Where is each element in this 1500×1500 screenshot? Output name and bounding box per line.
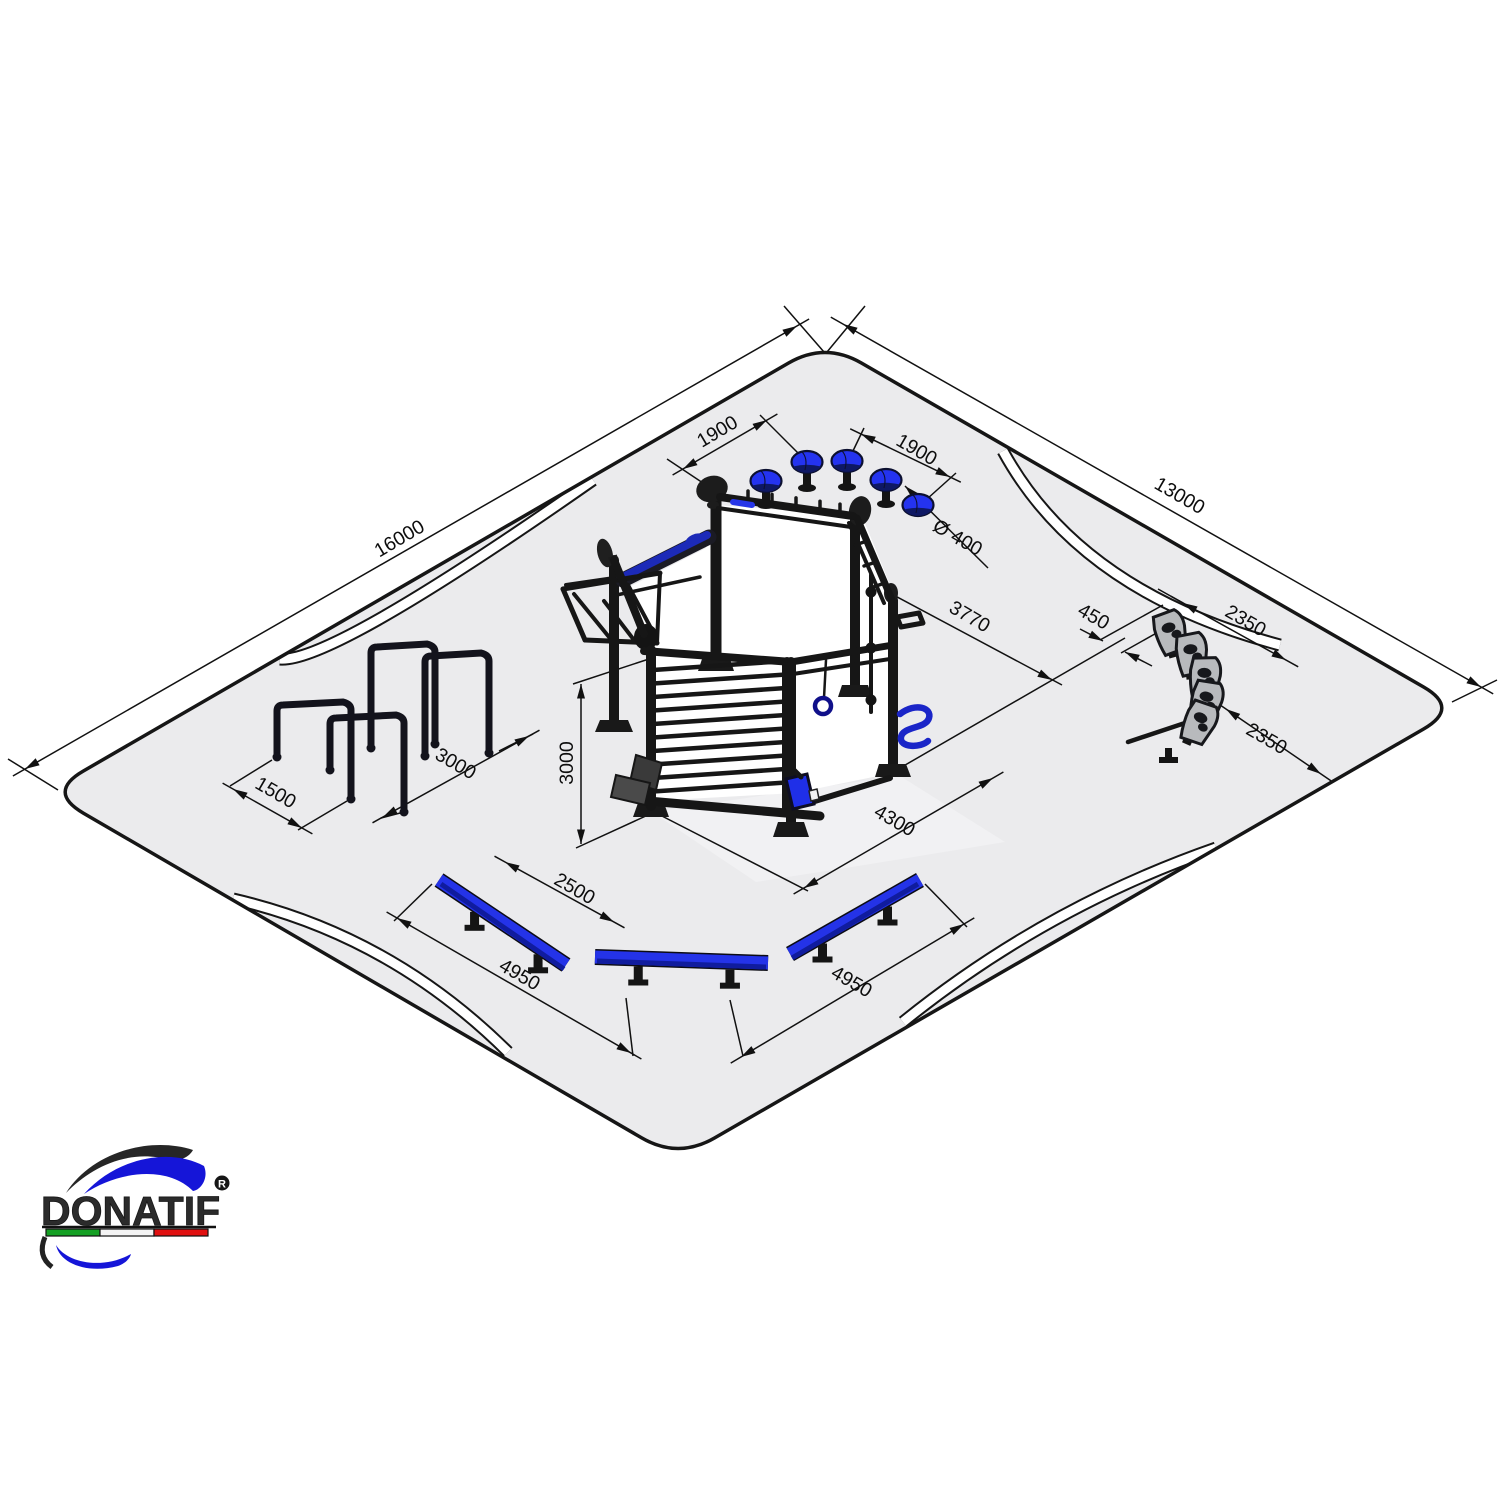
svg-text:3000: 3000 xyxy=(556,741,578,785)
svg-text:R: R xyxy=(218,1179,226,1191)
